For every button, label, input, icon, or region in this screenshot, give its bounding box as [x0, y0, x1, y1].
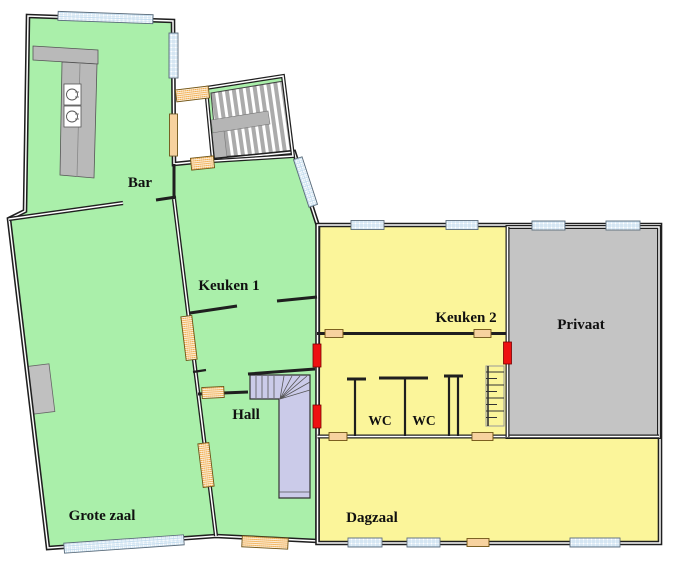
window: [570, 538, 620, 547]
window: [446, 221, 478, 230]
red-door-icon: [313, 405, 321, 428]
window: [532, 221, 565, 230]
door: [325, 330, 343, 338]
window: [606, 221, 640, 230]
door: [474, 330, 491, 338]
sink-icon: [64, 106, 81, 127]
red-door-icon: [313, 344, 321, 367]
sink-icon: [64, 84, 81, 105]
upper-stairs-icon: [211, 81, 292, 160]
room-label-grotezaal: Grote zaal: [69, 508, 136, 524]
door: [190, 156, 214, 170]
door: [467, 539, 489, 547]
room-label-wc1: WC: [368, 413, 391, 428]
room-label-bar: Bar: [128, 175, 153, 191]
door: [242, 536, 289, 549]
door: [472, 433, 493, 441]
floor-plan: Bar Keuken 1 Keuken 2 Privaat Hall WC WC…: [0, 0, 673, 562]
window: [407, 538, 440, 547]
window: [351, 221, 384, 230]
room-label-keuken1: Keuken 1: [198, 278, 259, 294]
floor-plan-page: Bar Keuken 1 Keuken 2 Privaat Hall WC WC…: [0, 0, 673, 562]
room-label-keuken2: Keuken 2: [435, 310, 496, 326]
door: [329, 433, 347, 441]
room-label-privaat: Privaat: [557, 317, 604, 333]
room-label-dagzaal: Dagzaal: [346, 510, 398, 526]
red-door-icon: [504, 342, 512, 364]
door: [170, 114, 178, 156]
door: [175, 86, 209, 102]
room-label-wc2: WC: [412, 413, 435, 428]
room-label-hall: Hall: [232, 407, 260, 423]
door: [202, 386, 225, 398]
window: [348, 538, 382, 547]
window: [169, 33, 178, 78]
